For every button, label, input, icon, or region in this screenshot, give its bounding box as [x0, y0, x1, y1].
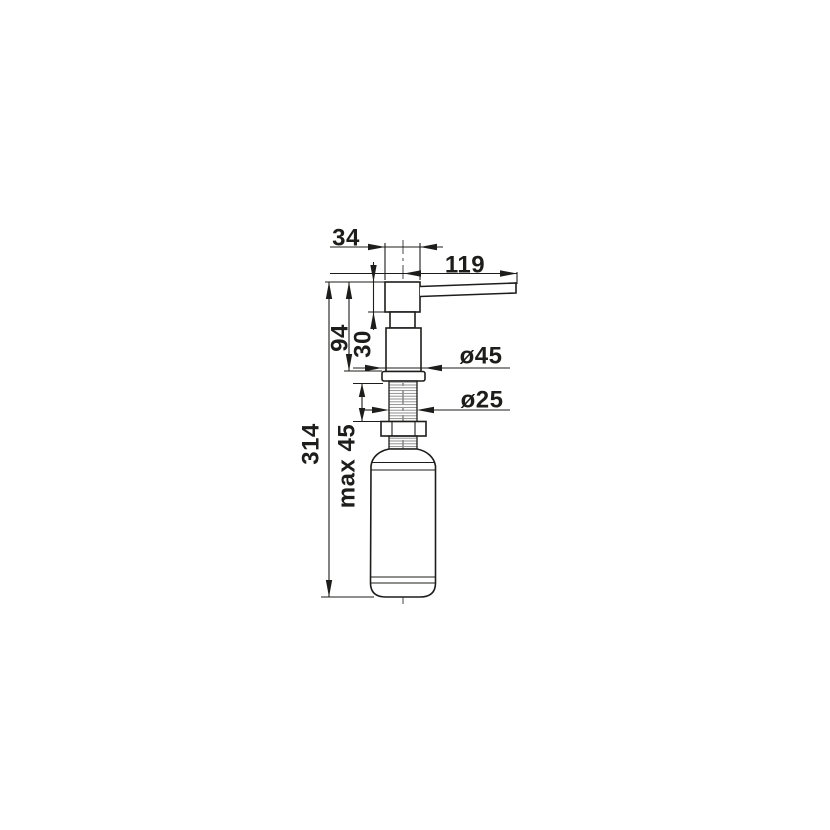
locknut	[381, 422, 426, 437]
dim-label-d45: ø45	[460, 342, 503, 369]
pump-body	[386, 328, 421, 372]
mounting-flange	[382, 372, 425, 382]
technical-drawing: 34 119 94 30 ø45 ø25	[0, 0, 830, 830]
pump-head	[385, 282, 420, 312]
neck	[390, 312, 415, 328]
bottle	[371, 449, 436, 597]
dim-label-max45: max 45	[333, 424, 360, 508]
dim-label-314: 314	[297, 423, 324, 465]
threaded-shaft	[389, 381, 417, 422]
threaded-shaft-lower	[389, 436, 417, 449]
dim-label-d25: ø25	[461, 386, 504, 413]
dim-label-119: 119	[445, 251, 485, 278]
drawing-canvas: 34 119 94 30 ø45 ø25	[0, 0, 830, 830]
dim-label-30: 30	[349, 330, 376, 358]
dim-label-34: 34	[332, 224, 360, 251]
